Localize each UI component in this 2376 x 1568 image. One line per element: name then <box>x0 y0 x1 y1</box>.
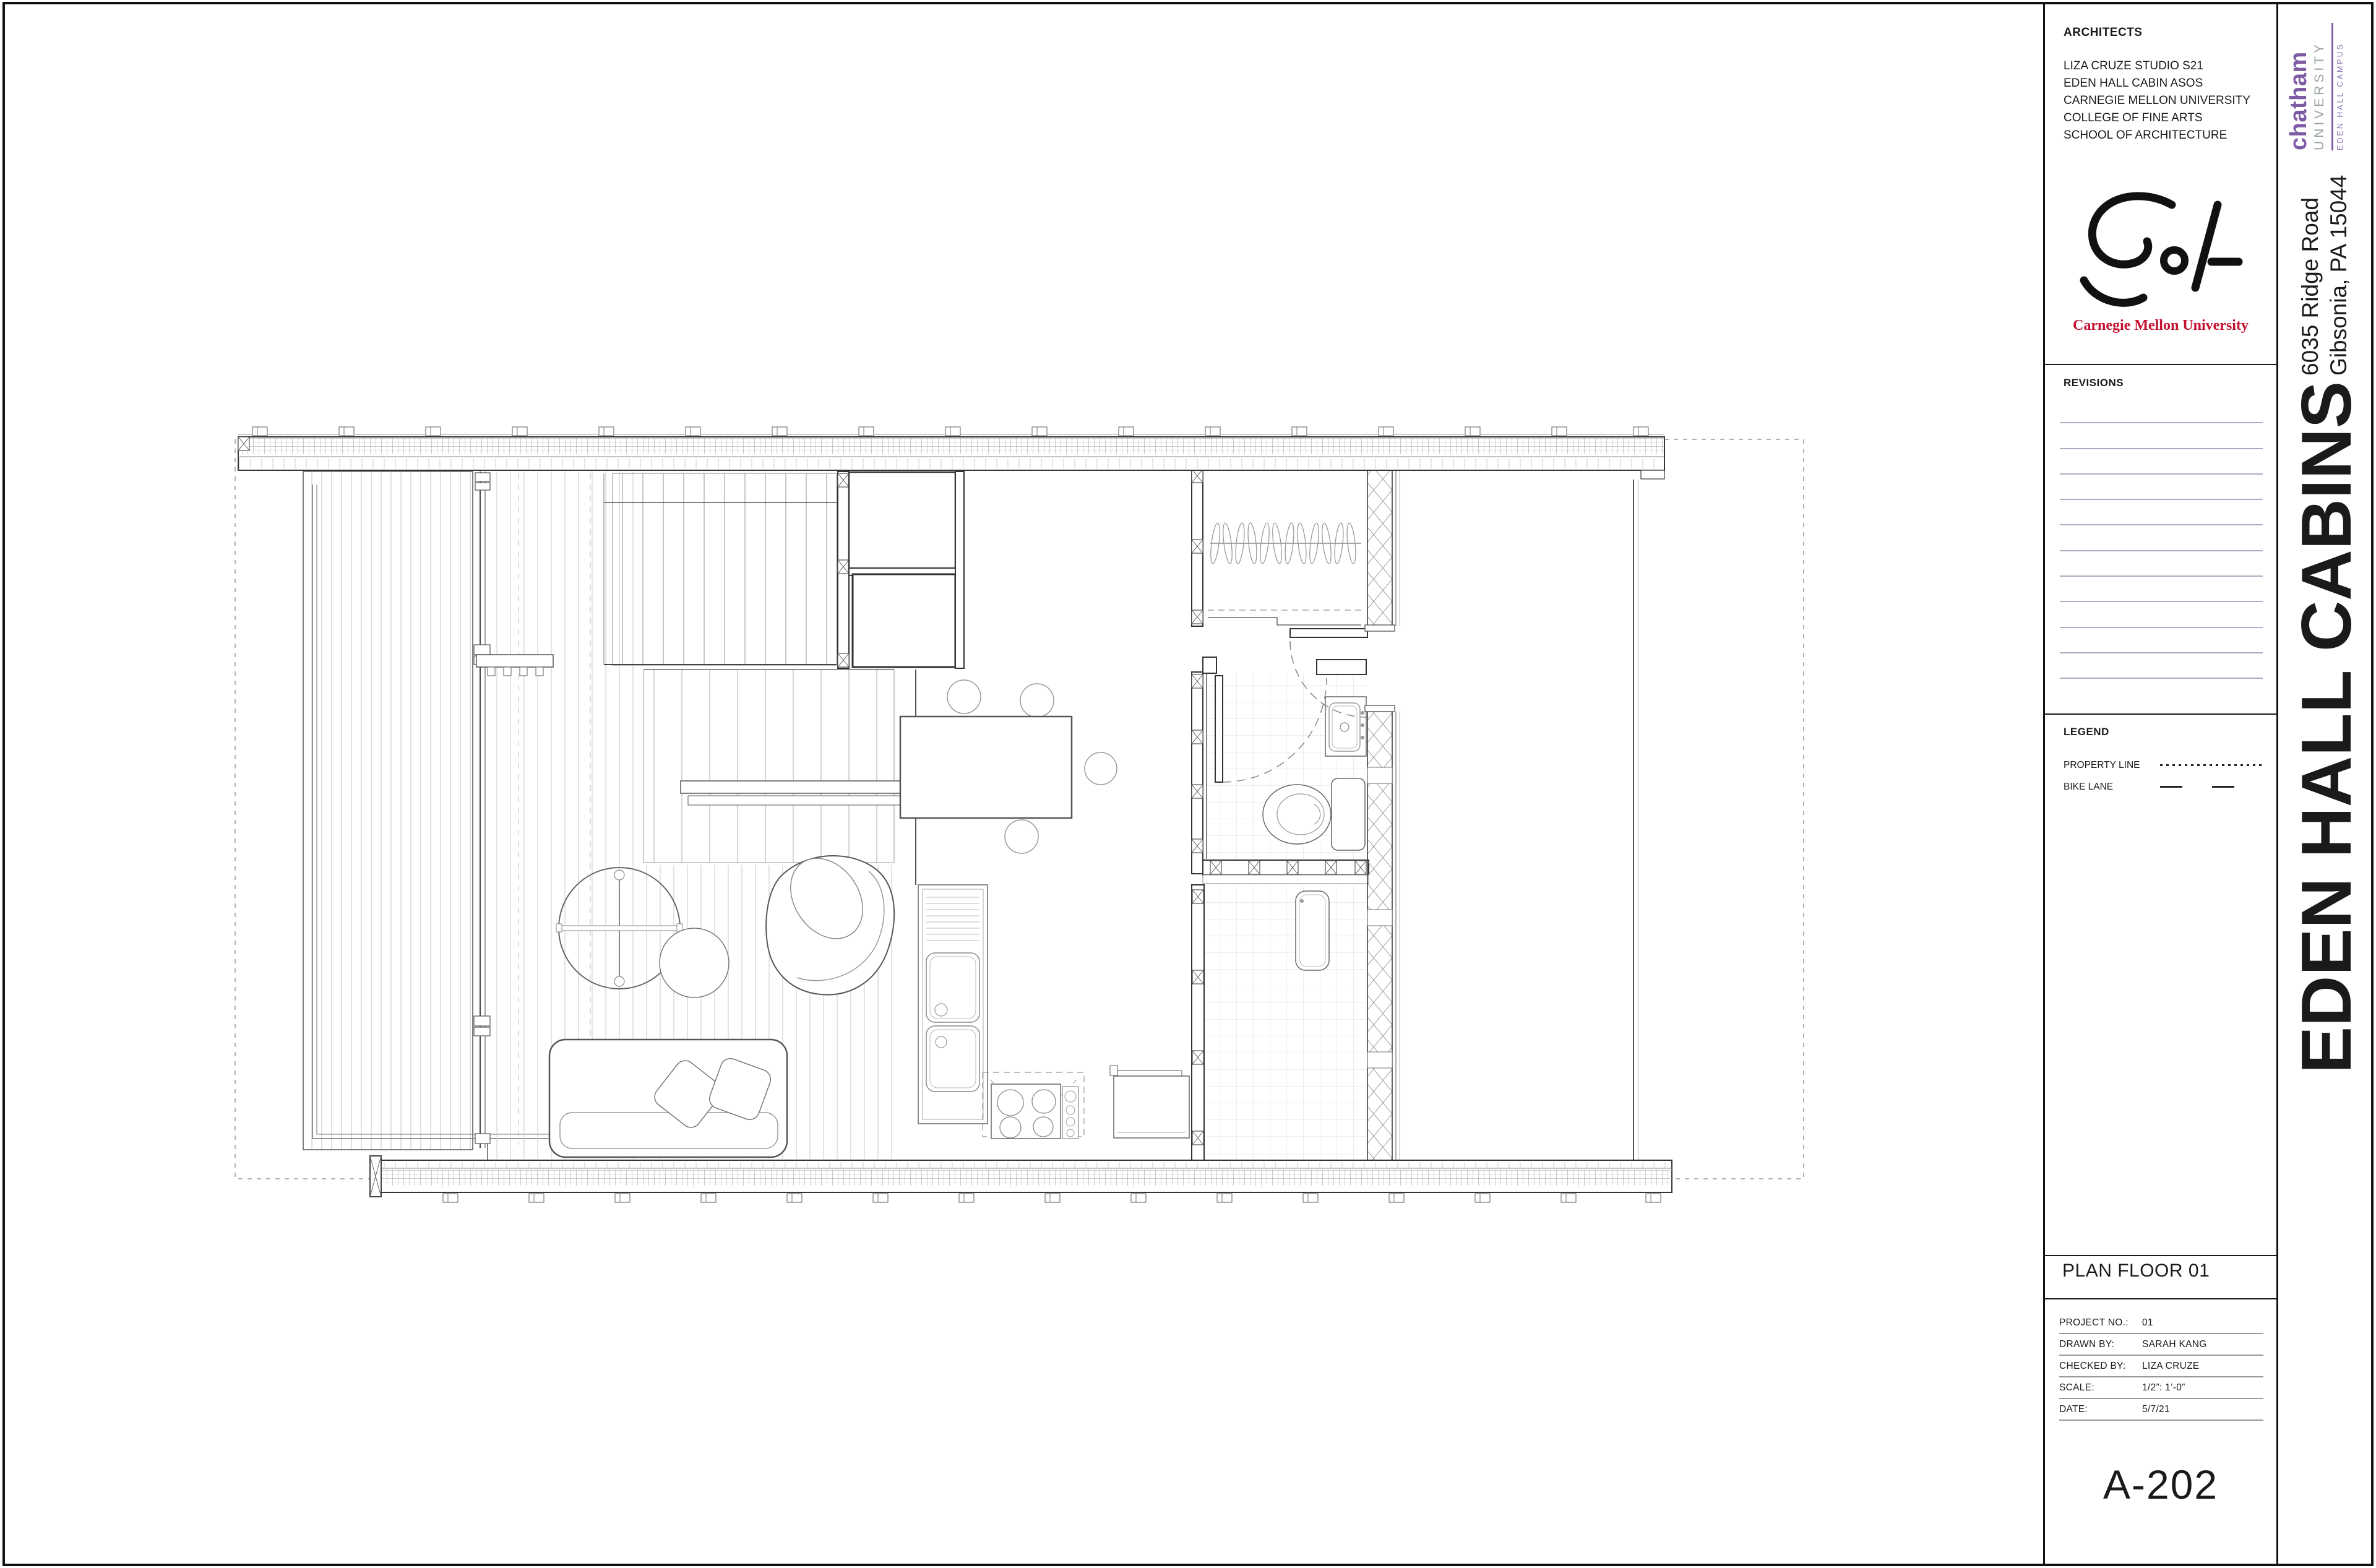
sheet-number: A-202 <box>2045 1461 2276 1508</box>
stool <box>1020 684 1054 717</box>
titleblock-fields: PROJECT NO.: 01 DRAWN BY: SARAH KANG CHE… <box>2059 1312 2263 1421</box>
divider <box>2045 1255 2276 1256</box>
revision-row <box>2060 423 2263 449</box>
legend-item-name: BIKE LANE <box>2064 782 2154 793</box>
bike-lane-sample <box>2160 786 2262 788</box>
sink-basin <box>926 953 979 1022</box>
revision-row <box>2060 525 2263 551</box>
legend-item: BIKE LANE <box>2064 776 2262 798</box>
field-value: 5/7/21 <box>2142 1404 2170 1415</box>
address-line2: Gibsonia, PA 15044 <box>2325 183 2353 376</box>
stool <box>1085 752 1117 785</box>
field-label: DRAWN BY: <box>2059 1339 2142 1350</box>
burner <box>1000 1117 1021 1138</box>
edge-strip: chatham UNIVERSITY EDEN HALL CAMPUS 6035… <box>2280 2 2374 1566</box>
revision-row <box>2060 577 2263 602</box>
chatham-university: UNIVERSITY <box>2311 19 2328 150</box>
legend-item: PROPERTY LINE <box>2064 754 2262 776</box>
south-wall <box>370 1156 1672 1202</box>
pouf <box>660 928 729 997</box>
burner <box>997 1090 1023 1116</box>
rail <box>681 781 917 805</box>
revision-row <box>2060 475 2263 500</box>
revision-row <box>2060 628 2263 653</box>
burner <box>1032 1090 1056 1113</box>
field-row: DATE: 5/7/21 <box>2059 1399 2263 1421</box>
burner <box>1033 1117 1053 1137</box>
dining-set <box>900 680 1117 853</box>
field-row: CHECKED BY: LIZA CRUZE <box>2059 1356 2263 1377</box>
drawing-sheet: { "sheet": { "architects": { "label": "A… <box>0 0 2376 1568</box>
stool <box>947 680 981 713</box>
chatham-campus: EDEN HALL CAMPUS <box>2336 19 2344 150</box>
wall-clips <box>443 1194 1661 1202</box>
east-wall <box>1365 463 1400 1160</box>
divider <box>2045 1298 2276 1299</box>
revision-row <box>2060 449 2263 475</box>
cooktop <box>983 1072 1084 1139</box>
field-row: PROJECT NO.: 01 <box>2059 1312 2263 1334</box>
revision-row <box>2060 398 2263 423</box>
kitchen-counter <box>918 885 988 1124</box>
revision-row <box>2060 653 2263 679</box>
field-value: 1/2”: 1’-0” <box>2142 1382 2185 1394</box>
closet <box>1192 467 1361 626</box>
cmu-wordmark: Carnegie Mellon University <box>2045 317 2276 334</box>
bath-sink <box>1325 697 1366 756</box>
architects-label: ARCHITECTS <box>2064 24 2264 41</box>
sink-basin <box>926 1026 979 1092</box>
field-value: SARAH KANG <box>2142 1339 2207 1350</box>
address-line1: 6035 Ridge Road <box>2296 183 2325 376</box>
east-glazing <box>1633 480 1638 1160</box>
revision-row <box>2060 500 2263 525</box>
revisions-label: REVISIONS <box>2064 377 2124 389</box>
drawing-title: PLAN FLOOR 01 <box>2062 1260 2210 1282</box>
oven <box>1110 1066 1189 1138</box>
architects-lines: LIZA CRUZE STUDIO S21 EDEN HALL CABIN AS… <box>2064 58 2264 144</box>
bathroom <box>1192 657 1369 884</box>
legend-items: PROPERTY LINE BIKE LANE <box>2064 754 2262 798</box>
chatham-wordmark: chatham <box>2286 19 2311 150</box>
legend-item-name: PROPERTY LINE <box>2064 760 2154 771</box>
cmu-studio-mark-icon <box>2074 187 2247 311</box>
stool <box>1005 820 1038 853</box>
revision-lines <box>2060 398 2263 679</box>
dining-table <box>900 717 1072 818</box>
divider <box>2045 364 2276 365</box>
field-value: 01 <box>2142 1317 2153 1329</box>
cmu-logo: Carnegie Mellon University <box>2045 187 2276 334</box>
revision-row <box>2060 551 2263 577</box>
divider <box>2045 713 2276 715</box>
sofa <box>549 1040 787 1157</box>
chatham-logo: chatham UNIVERSITY EDEN HALL CAMPUS <box>2286 19 2369 150</box>
toilet <box>1263 778 1365 850</box>
revision-row <box>2060 602 2263 627</box>
field-label: DATE: <box>2059 1404 2142 1415</box>
bath-door <box>1215 676 1223 782</box>
shower-fixture <box>1296 891 1329 970</box>
field-label: PROJECT NO.: <box>2059 1317 2142 1329</box>
project-title: EDEN HALL CABINS <box>2281 381 2374 1074</box>
floor-plan <box>0 0 2043 1568</box>
field-label: CHECKED BY: <box>2059 1361 2142 1372</box>
field-row: SCALE: 1/2”: 1’-0” <box>2059 1377 2263 1399</box>
project-address: 6035 Ridge Road Gibsonia, PA 15044 <box>2296 183 2358 376</box>
field-label: SCALE: <box>2059 1382 2142 1394</box>
stair-rooms <box>838 472 964 668</box>
legend-label: LEGEND <box>2064 726 2109 738</box>
property-line-sample <box>2160 764 2262 766</box>
title-column: ARCHITECTS LIZA CRUZE STUDIO S21 EDEN HA… <box>2043 2 2278 1566</box>
field-row: DRAWN BY: SARAH KANG <box>2059 1334 2263 1356</box>
chatham-rule <box>2331 23 2333 150</box>
architects-block: ARCHITECTS LIZA CRUZE STUDIO S21 EDEN HA… <box>2064 24 2264 144</box>
shower-room <box>1192 885 1366 1160</box>
field-value: LIZA CRUZE <box>2142 1361 2200 1372</box>
